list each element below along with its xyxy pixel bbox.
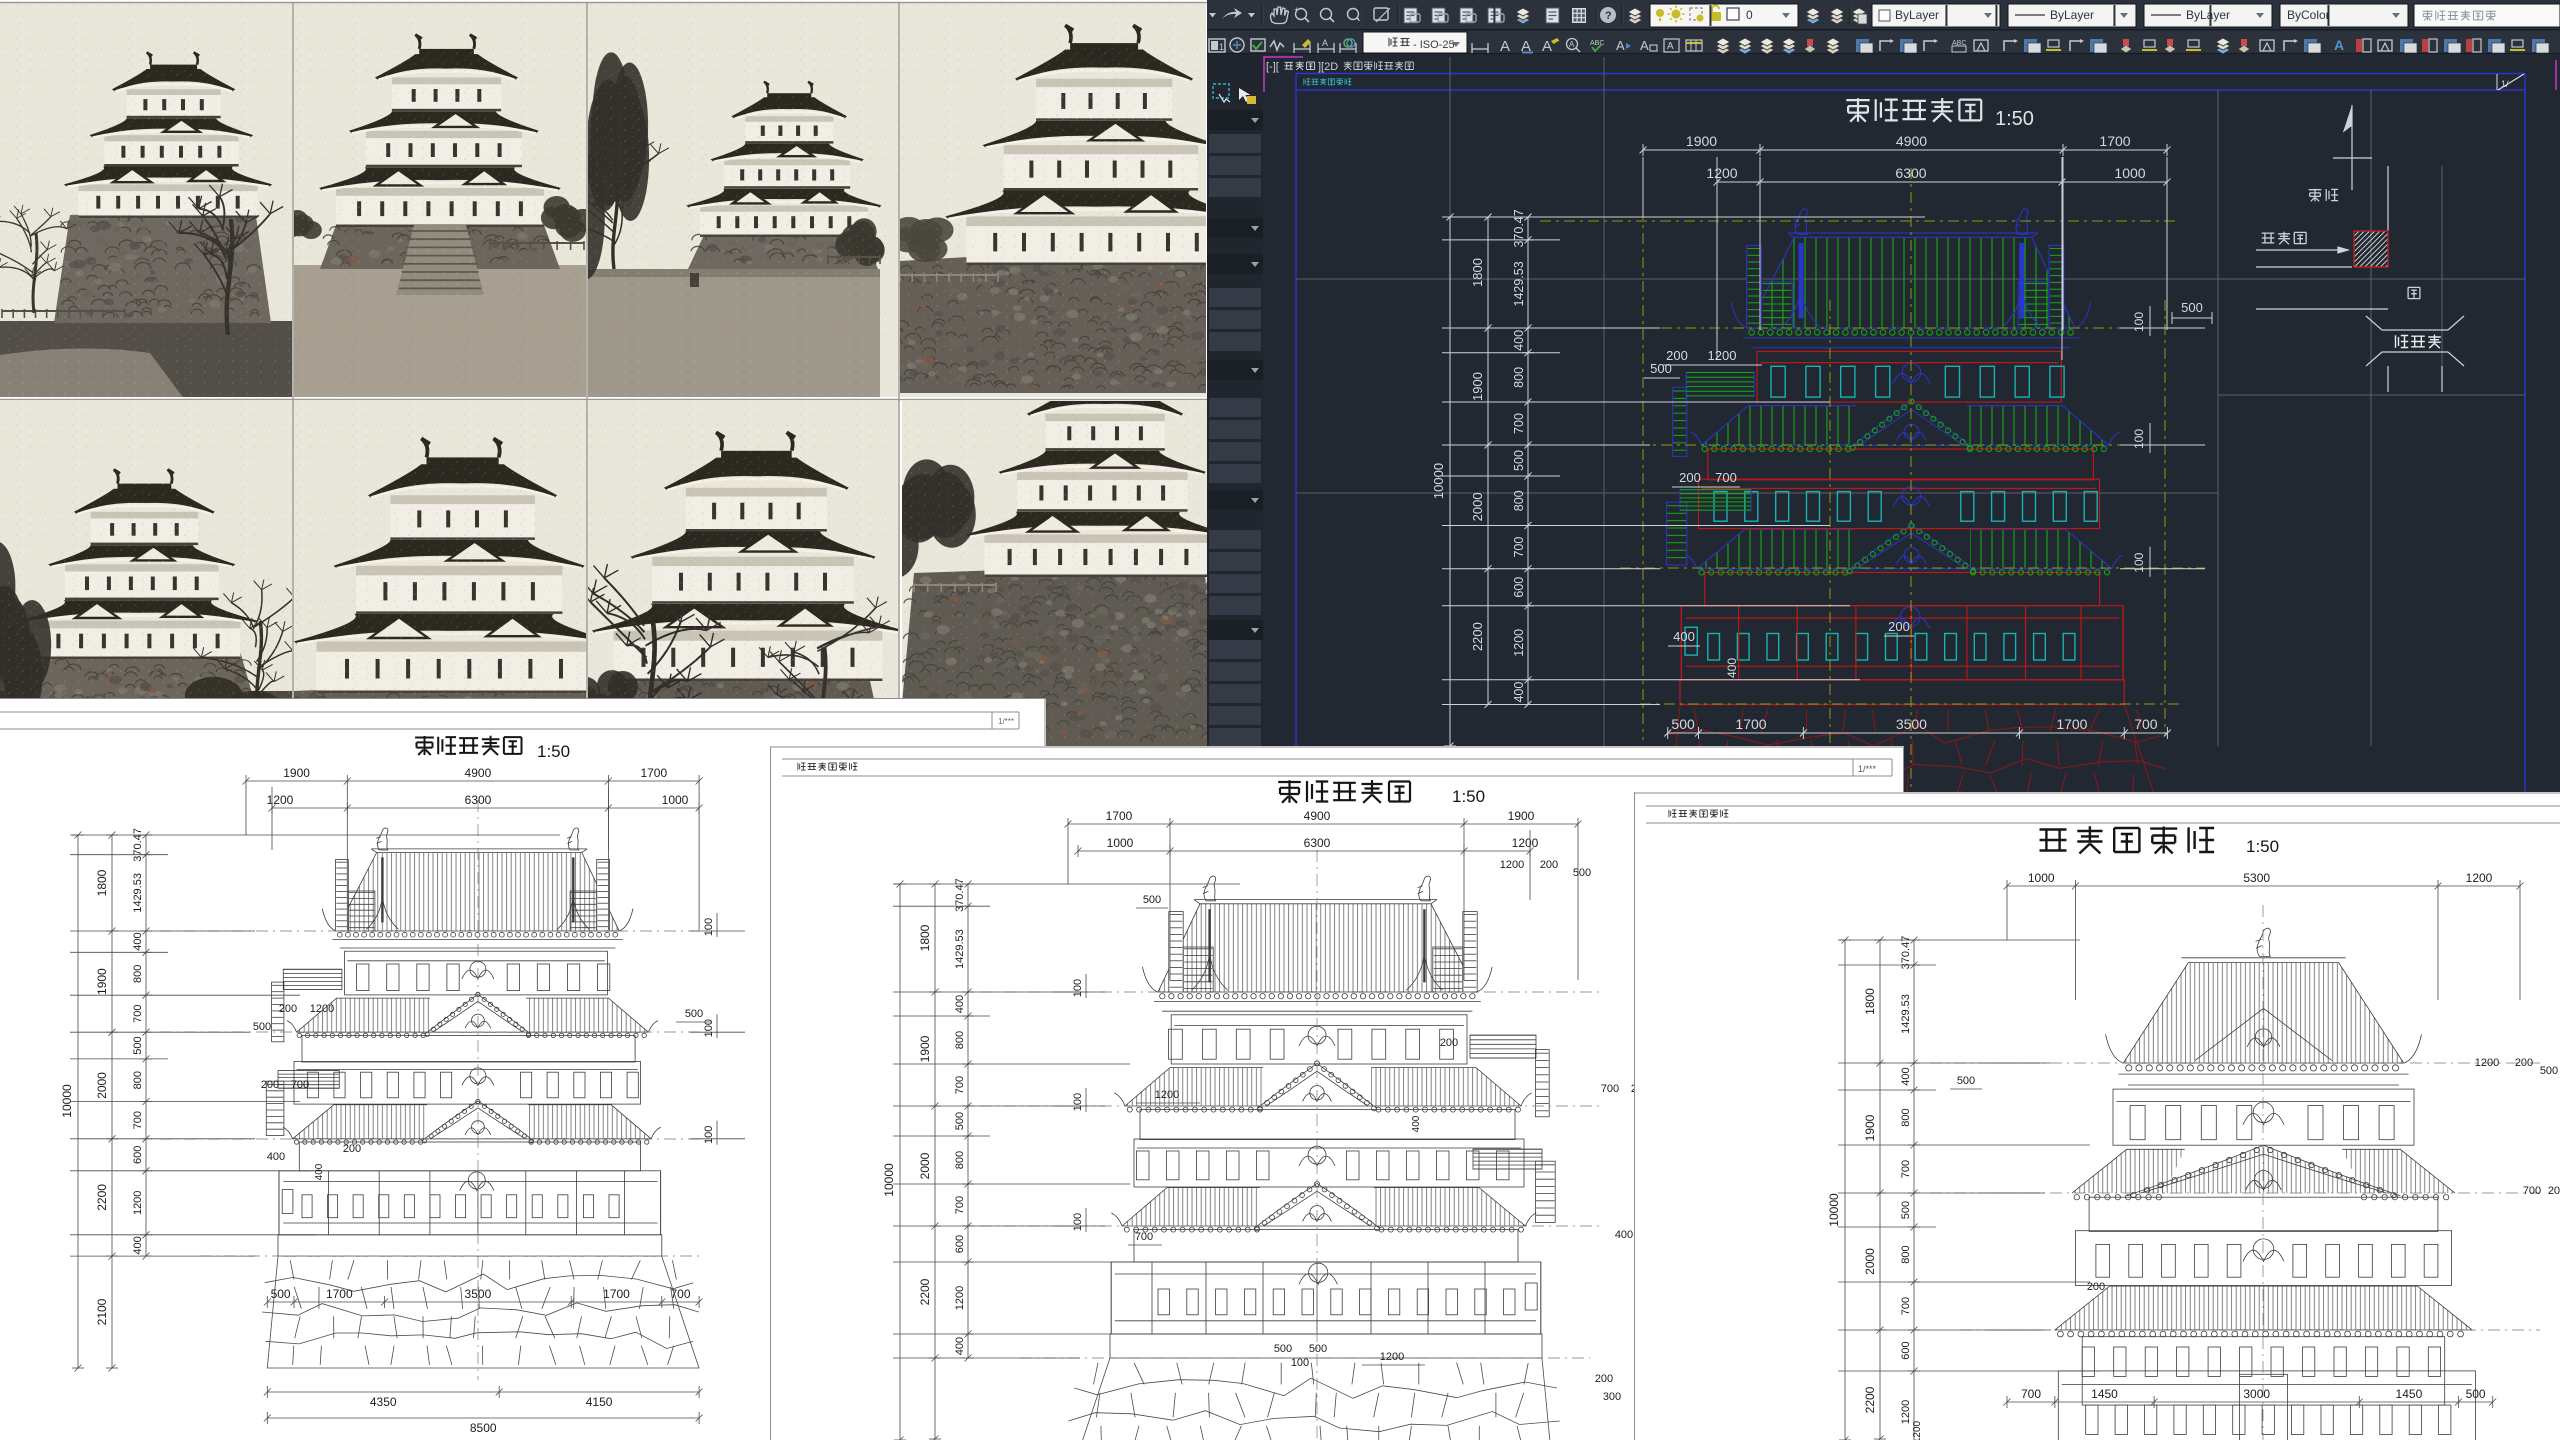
svg-text:][2D: ][2D (1318, 61, 1338, 73)
svg-text:2200: 2200 (1863, 1386, 1877, 1413)
svg-text:100: 100 (2132, 552, 2146, 572)
svg-text:1700: 1700 (1735, 716, 1766, 732)
svg-text:700: 700 (1715, 470, 1737, 485)
svg-text:3000: 3000 (2243, 1387, 2270, 1401)
svg-text:1200: 1200 (954, 1286, 966, 1310)
svg-text:1900: 1900 (1470, 372, 1485, 401)
svg-text:1429.53: 1429.53 (954, 929, 966, 969)
svg-text:1: 1 (1219, 42, 1224, 52)
svg-text:100: 100 (703, 1126, 715, 1144)
svg-text:1200: 1200 (267, 793, 294, 807)
svg-text:400: 400 (954, 1337, 966, 1355)
svg-text:ByLayer: ByLayer (1895, 8, 1939, 22)
svg-text:600: 600 (1512, 577, 1526, 598)
svg-text:1200: 1200 (1512, 629, 1526, 657)
svg-text:0: 0 (1746, 8, 1753, 22)
svg-text:A: A (1322, 38, 1328, 48)
svg-text:500: 500 (2181, 300, 2203, 315)
svg-text:1:50: 1:50 (537, 742, 570, 761)
svg-text:400: 400 (1512, 330, 1526, 351)
svg-text:4150: 4150 (586, 1395, 613, 1409)
svg-text:700: 700 (1135, 1231, 1153, 1243)
svg-text:1700: 1700 (603, 1287, 630, 1301)
svg-text:200: 200 (1540, 859, 1558, 871)
svg-text:700: 700 (1900, 1297, 1912, 1315)
svg-text:1200: 1200 (1912, 1420, 1923, 1440)
svg-text:200: 200 (261, 1079, 279, 1091)
svg-text:3500: 3500 (465, 1287, 492, 1301)
svg-text:A: A (2334, 37, 2344, 53)
svg-text:370.47: 370.47 (1512, 209, 1526, 247)
svg-text:200: 200 (1595, 1373, 1613, 1385)
svg-text:1/: 1/ (2501, 79, 2509, 89)
svg-text:A: A (1500, 38, 1510, 54)
svg-text:1000: 1000 (662, 793, 689, 807)
svg-text:600: 600 (1900, 1341, 1912, 1359)
svg-text:1000: 1000 (2114, 165, 2145, 181)
svg-text:800: 800 (1900, 1108, 1912, 1126)
svg-text:370.47: 370.47 (1900, 936, 1912, 970)
svg-text:800: 800 (132, 1071, 144, 1089)
svg-text:1:50: 1:50 (1995, 108, 2034, 130)
svg-text:500: 500 (132, 1036, 144, 1054)
svg-text:ByLayer: ByLayer (2050, 8, 2094, 22)
svg-text:400: 400 (314, 1163, 325, 1180)
svg-text:1200: 1200 (1380, 1351, 1404, 1363)
svg-text:1800: 1800 (1863, 988, 1877, 1015)
svg-text:1200: 1200 (1900, 1400, 1912, 1424)
svg-text:370.47: 370.47 (954, 878, 966, 912)
svg-text:1450: 1450 (2396, 1387, 2423, 1401)
svg-text:500: 500 (1309, 1343, 1327, 1355)
svg-text:700: 700 (291, 1079, 309, 1091)
svg-text:700: 700 (670, 1287, 690, 1301)
svg-text:?: ? (1605, 10, 1612, 22)
svg-text:700: 700 (1601, 1083, 1619, 1095)
svg-text:1:50: 1:50 (2246, 837, 2279, 856)
svg-text:1429.53: 1429.53 (1512, 261, 1526, 306)
svg-text:1700: 1700 (2056, 716, 2087, 732)
svg-text:700: 700 (2021, 1387, 2041, 1401)
svg-text:1800: 1800 (918, 924, 932, 951)
svg-text:200: 200 (1666, 348, 1688, 363)
svg-text:200: 200 (1888, 619, 1910, 634)
svg-text:A: A (1569, 40, 1575, 49)
svg-text:1/***: 1/*** (998, 717, 1014, 726)
svg-text:1900: 1900 (918, 1035, 932, 1062)
svg-text:700: 700 (1900, 1160, 1912, 1178)
svg-text:- ISO-25: - ISO-25 (1413, 39, 1455, 51)
svg-text:1429.53: 1429.53 (132, 873, 144, 913)
svg-text:1200: 1200 (1512, 836, 1539, 850)
svg-text:700: 700 (2134, 716, 2158, 732)
svg-text:ByLayer: ByLayer (2186, 8, 2230, 22)
svg-text:A: A (1616, 38, 1625, 53)
svg-text:1200: 1200 (1500, 859, 1524, 871)
svg-text:200: 200 (343, 1143, 361, 1155)
svg-text:400: 400 (1673, 629, 1695, 644)
svg-text:ABC: ABC (1590, 40, 1604, 47)
svg-text:6300: 6300 (465, 793, 492, 807)
svg-text:400: 400 (1512, 682, 1526, 703)
svg-text:400: 400 (1900, 1067, 1912, 1085)
svg-text:500: 500 (2466, 1387, 2486, 1401)
svg-text:100: 100 (2132, 312, 2146, 332)
svg-text:700: 700 (1512, 413, 1526, 434)
svg-text:400: 400 (267, 1151, 285, 1163)
svg-text:700: 700 (132, 1005, 144, 1023)
svg-text:[-][: [-][ (1266, 61, 1279, 73)
svg-text:2000: 2000 (95, 1072, 109, 1099)
svg-text:1700: 1700 (2099, 133, 2130, 149)
svg-text:700: 700 (2523, 1185, 2541, 1197)
svg-text:1000: 1000 (1107, 836, 1134, 850)
svg-text:A: A (1640, 38, 1649, 53)
svg-text:2000: 2000 (1470, 492, 1485, 521)
svg-text:500: 500 (1900, 1201, 1912, 1219)
svg-text:5300: 5300 (2243, 871, 2270, 885)
svg-text:500: 500 (271, 1287, 291, 1301)
svg-text:800: 800 (954, 1031, 966, 1049)
svg-text:500: 500 (1573, 867, 1591, 879)
svg-text:100: 100 (1072, 1213, 1084, 1231)
svg-text:200: 200 (2087, 1281, 2105, 1293)
svg-text:100: 100 (703, 918, 715, 936)
svg-text:1900: 1900 (1508, 809, 1535, 823)
svg-text:500: 500 (1143, 894, 1161, 906)
svg-text:3500: 3500 (1896, 716, 1927, 732)
svg-text:10000: 10000 (60, 1084, 74, 1118)
svg-text:500: 500 (685, 1008, 703, 1020)
svg-text:700: 700 (954, 1076, 966, 1094)
svg-text:1200: 1200 (1706, 165, 1737, 181)
svg-text:200: 200 (2548, 1185, 2560, 1197)
svg-text:500: 500 (1512, 450, 1526, 471)
svg-text:1000: 1000 (2028, 871, 2055, 885)
svg-text:600: 600 (954, 1235, 966, 1253)
svg-text:500: 500 (1957, 1075, 1975, 1087)
svg-text:2200: 2200 (918, 1278, 932, 1305)
svg-text:800: 800 (132, 965, 144, 983)
svg-text:1700: 1700 (326, 1287, 353, 1301)
svg-text:A: A (1542, 38, 1552, 54)
svg-text:1:50: 1:50 (1452, 787, 1485, 806)
svg-text:700: 700 (1512, 537, 1526, 558)
svg-text:400: 400 (1725, 658, 1739, 678)
svg-text:100: 100 (2132, 429, 2146, 449)
svg-text:600: 600 (132, 1146, 144, 1164)
svg-text:1200: 1200 (2475, 1057, 2499, 1069)
svg-text:100: 100 (1072, 1093, 1084, 1111)
svg-text:4900: 4900 (1896, 133, 1927, 149)
svg-text:8500: 8500 (470, 1421, 497, 1435)
svg-text:1900: 1900 (1686, 133, 1717, 149)
svg-text:300: 300 (1603, 1391, 1621, 1403)
svg-text:2000: 2000 (1863, 1248, 1877, 1275)
svg-text:370.47: 370.47 (132, 828, 144, 862)
svg-text:1200: 1200 (310, 1003, 334, 1015)
svg-text:1900: 1900 (95, 968, 109, 995)
svg-text:10000: 10000 (1827, 1193, 1841, 1227)
svg-text:500: 500 (2540, 1065, 2558, 1077)
svg-text:100: 100 (1072, 979, 1084, 997)
svg-text:A: A (1667, 41, 1674, 52)
svg-text:1900: 1900 (283, 766, 310, 780)
svg-text:800: 800 (1512, 490, 1526, 511)
svg-text:500: 500 (253, 1021, 271, 1033)
svg-text:1200: 1200 (1155, 1089, 1179, 1101)
svg-text:500: 500 (954, 1112, 966, 1130)
svg-text:1700: 1700 (640, 766, 667, 780)
svg-text:4900: 4900 (1304, 809, 1331, 823)
svg-text:400: 400 (1411, 1115, 1422, 1132)
svg-text:10000: 10000 (1431, 463, 1446, 499)
svg-text:1450: 1450 (2091, 1387, 2118, 1401)
svg-text:1800: 1800 (1470, 258, 1485, 287)
svg-text:200: 200 (1440, 1037, 1458, 1049)
svg-text:700: 700 (132, 1111, 144, 1129)
svg-text:200: 200 (1679, 470, 1701, 485)
svg-text:4350: 4350 (370, 1395, 397, 1409)
svg-text:6300: 6300 (1895, 165, 1926, 181)
svg-text:2200: 2200 (1470, 622, 1485, 651)
svg-text:400: 400 (132, 1236, 144, 1254)
svg-text:200: 200 (279, 1003, 297, 1015)
svg-text:800: 800 (1900, 1245, 1912, 1263)
svg-text:1200: 1200 (1708, 348, 1737, 363)
svg-text:400: 400 (132, 932, 144, 950)
svg-text:800: 800 (954, 1151, 966, 1169)
svg-text:500: 500 (1650, 361, 1672, 376)
svg-text:400: 400 (954, 995, 966, 1013)
svg-text:100: 100 (1291, 1357, 1309, 1369)
svg-text:2000: 2000 (918, 1152, 932, 1179)
svg-text:10000: 10000 (882, 1163, 896, 1197)
svg-text:1429.53: 1429.53 (1900, 994, 1912, 1034)
svg-text:6300: 6300 (1304, 836, 1331, 850)
svg-text:200: 200 (2515, 1057, 2533, 1069)
svg-text:800: 800 (1512, 367, 1526, 388)
svg-text:1700: 1700 (1106, 809, 1133, 823)
svg-text:500: 500 (1274, 1343, 1292, 1355)
svg-text:1900: 1900 (1863, 1114, 1877, 1141)
svg-text:1200: 1200 (2466, 871, 2493, 885)
svg-text:500: 500 (1671, 716, 1695, 732)
svg-text:2100: 2100 (95, 1298, 109, 1325)
svg-text:700: 700 (954, 1196, 966, 1214)
svg-text:+: + (1294, 5, 1299, 14)
svg-text:1800: 1800 (95, 869, 109, 896)
svg-text:1200: 1200 (132, 1191, 144, 1215)
svg-text:1/***: 1/*** (1858, 764, 1877, 774)
svg-text:400: 400 (1615, 1229, 1633, 1241)
svg-text:4900: 4900 (465, 766, 492, 780)
svg-text:2200: 2200 (95, 1184, 109, 1211)
svg-text:ByColor: ByColor (2287, 8, 2330, 22)
